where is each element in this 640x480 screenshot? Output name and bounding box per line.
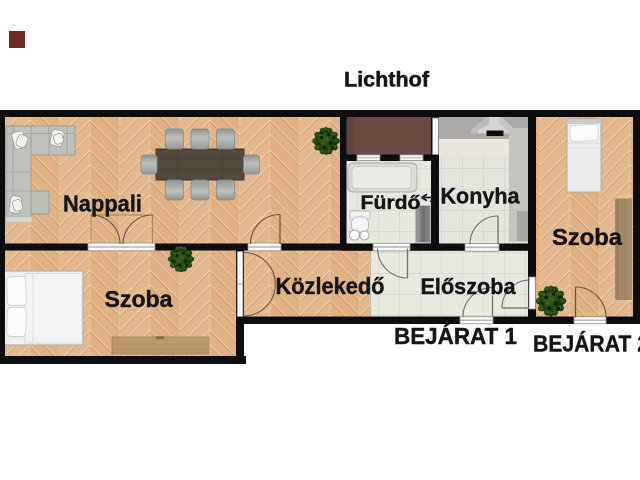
svg-text:Lichthof: Lichthof <box>344 69 430 92</box>
svg-text:BEJÁRAT 2: BEJÁRAT 2 <box>533 330 640 357</box>
svg-text:Nappali: Nappali <box>63 191 142 217</box>
svg-text:Közlekedő: Közlekedő <box>276 273 385 299</box>
svg-text:Konyha: Konyha <box>441 184 520 209</box>
svg-text:Szoba: Szoba <box>105 286 173 312</box>
svg-text:Szoba: Szoba <box>552 224 622 250</box>
svg-text:BEJÁRAT 1: BEJÁRAT 1 <box>394 322 517 349</box>
svg-text:Fürdő: Fürdő <box>361 192 421 214</box>
svg-text:Előszoba: Előszoba <box>421 274 517 299</box>
